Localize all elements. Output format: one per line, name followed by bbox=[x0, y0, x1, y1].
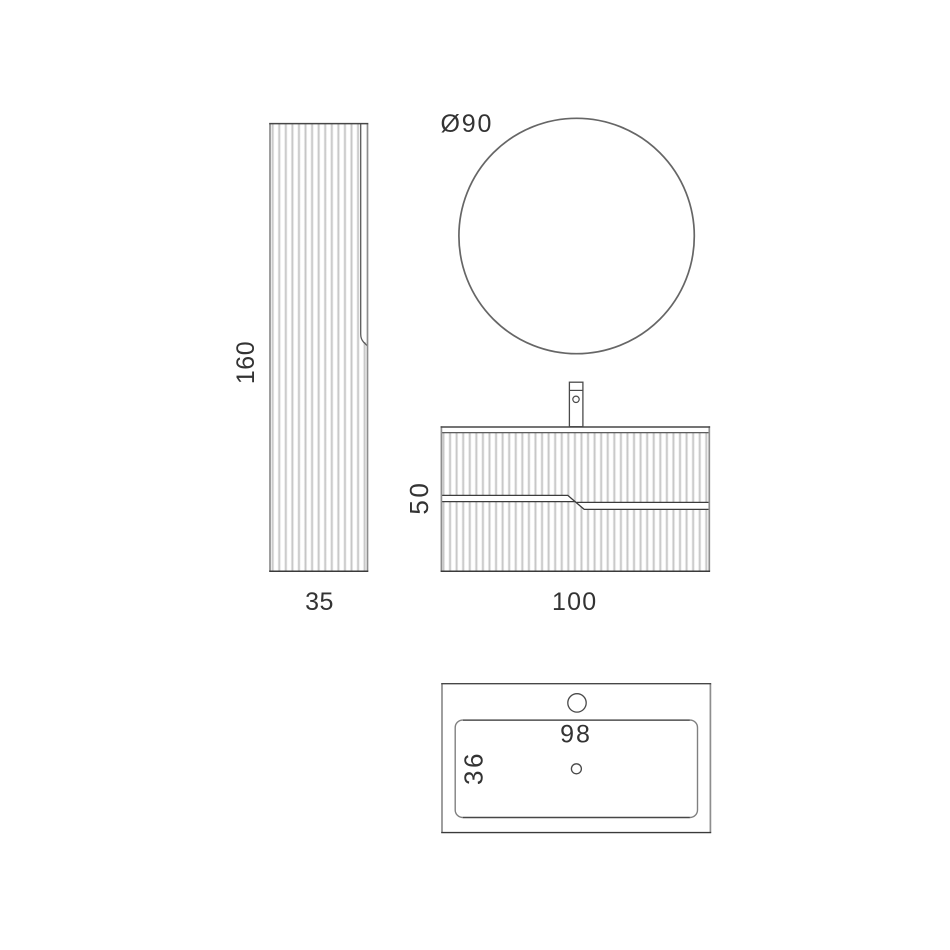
svg-text:50: 50 bbox=[404, 481, 434, 515]
svg-text:100: 100 bbox=[552, 588, 597, 616]
svg-text:160: 160 bbox=[232, 341, 260, 384]
svg-text:36: 36 bbox=[459, 751, 489, 785]
svg-text:Ø90: Ø90 bbox=[441, 110, 494, 138]
svg-text:35: 35 bbox=[305, 588, 334, 616]
svg-text:98: 98 bbox=[560, 721, 592, 749]
